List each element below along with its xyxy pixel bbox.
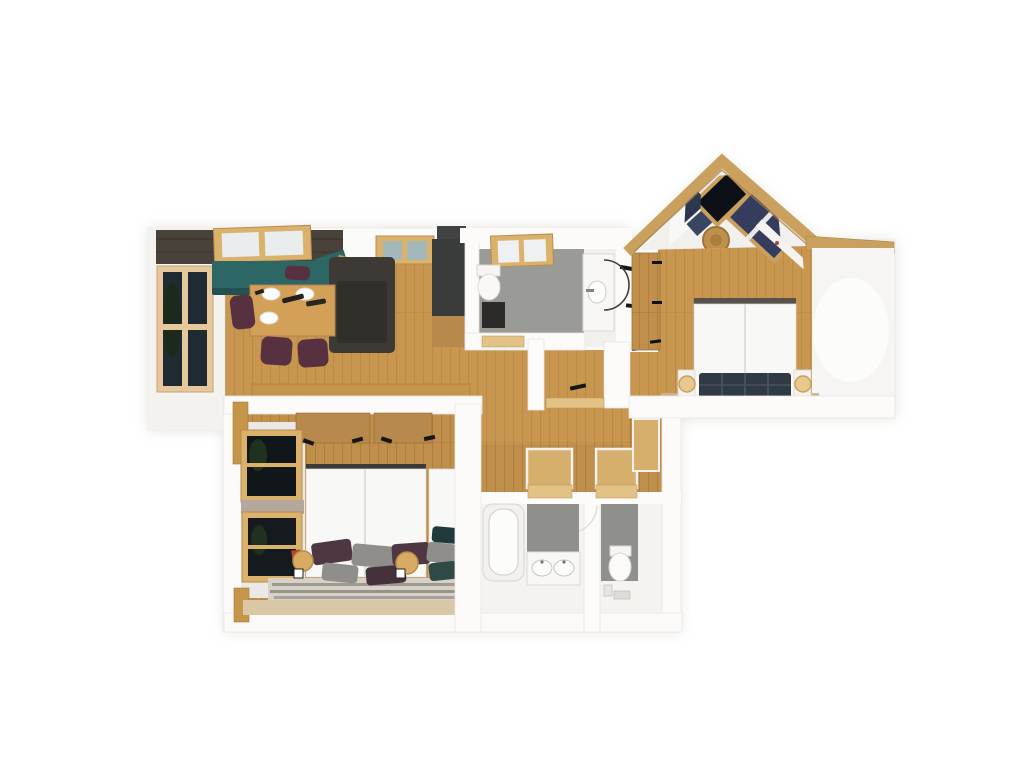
kids-rug-texture-3 — [274, 596, 466, 599]
kids-window-2-plant — [251, 525, 267, 555]
dining-window-mullion-v — [182, 272, 188, 386]
kids-pillow-8 — [431, 526, 458, 544]
skylight-dining-mullion — [259, 232, 266, 256]
dining-sideboard — [252, 384, 470, 397]
bath-gray-wall — [527, 504, 579, 554]
chair-bottom-2 — [297, 338, 329, 368]
floorplan-svg — [0, 0, 1024, 768]
wall-kitchen-bath — [465, 229, 479, 345]
hall-wardrobe-door — [633, 419, 659, 471]
chair-left — [229, 294, 256, 331]
bath-faucet-1 — [540, 560, 543, 563]
kids-pillow-4 — [321, 562, 359, 584]
wc-mat — [614, 591, 630, 599]
kids-pillow-2 — [351, 543, 395, 569]
wall-kids-right — [455, 404, 481, 632]
toilet-top-bowl — [478, 274, 500, 300]
hall-door-left — [527, 449, 572, 488]
master-lamp-right — [795, 376, 811, 392]
wall-kids-bottom — [224, 613, 472, 632]
wall-bath-wc-divider — [584, 494, 600, 632]
skylight-bath-mullion — [519, 240, 525, 262]
wall-baths-top-band — [477, 492, 681, 504]
wall-dining-bedroom — [224, 396, 482, 414]
kids-lamp-1 — [293, 551, 313, 571]
wall-landing-right — [604, 342, 630, 408]
floorplan-render — [0, 0, 1024, 768]
kids-window-2-mullion — [248, 545, 296, 549]
bedroom-door-floor — [630, 352, 662, 400]
wall-bedroom-bottom — [629, 396, 895, 418]
napkin-plate-1 — [262, 288, 280, 300]
sofa-cushions — [337, 281, 387, 343]
kids-pillow-7 — [428, 561, 458, 582]
wall-hall-right — [662, 404, 681, 632]
master-lamp-left — [679, 376, 695, 392]
kids-lamp-base-2 — [396, 569, 405, 578]
dormer-star-red — [775, 241, 779, 245]
hall-door-sill-left — [528, 485, 572, 498]
wardrobe-handle-1 — [652, 261, 662, 264]
chair-top — [285, 265, 311, 280]
napkin-plate-3 — [260, 312, 278, 324]
skylight-kitchen-mullion — [402, 241, 407, 260]
chair-bottom-1 — [260, 336, 293, 366]
bath-door-sill — [482, 336, 524, 347]
kids-floor-strip — [243, 600, 456, 615]
dining-window-tree — [163, 282, 181, 358]
kitchen-cabinet-base — [432, 316, 467, 347]
wc-toilet-bowl — [609, 553, 631, 581]
bath-mat-dark — [482, 302, 505, 328]
bath-faucet-2 — [562, 560, 565, 563]
kids-bed-1-headboard — [306, 464, 426, 469]
master-right-glow — [813, 278, 889, 382]
wc-brush — [604, 585, 612, 596]
kids-lamp-base-1 — [294, 569, 303, 578]
master-duvet-grid-4 — [699, 384, 791, 386]
kitchen-cabinet — [432, 239, 467, 318]
bedroom-door-sill — [546, 398, 604, 408]
master-bed-headboard — [694, 298, 796, 304]
wardrobe-handle-2 — [652, 301, 662, 304]
kids-window-1-mullion — [247, 463, 296, 467]
kids-rug-texture-2 — [270, 590, 468, 593]
hall-door-sill-right — [596, 485, 637, 498]
wall-hall-divider — [528, 339, 544, 410]
dormer-stool-inner — [710, 234, 722, 246]
vanity-faucet — [586, 289, 594, 292]
bathtub-inner — [489, 509, 518, 575]
hall-door-right — [596, 449, 637, 488]
wall-baths-bottom — [470, 613, 682, 632]
